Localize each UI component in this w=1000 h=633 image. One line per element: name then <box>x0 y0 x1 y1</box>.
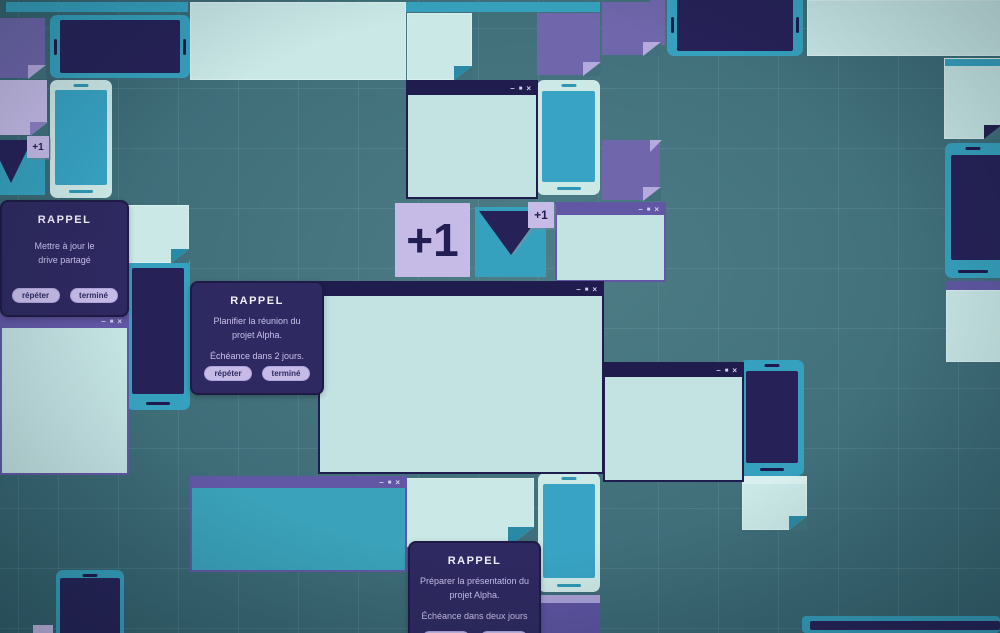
phone-portrait <box>126 256 190 410</box>
phone-landscape <box>50 15 190 78</box>
window-titlebar: – ■ × <box>192 478 405 488</box>
window-titlebar: – ■ × <box>320 283 602 296</box>
repeat-button[interactable]: répéter <box>204 366 252 381</box>
phone-landscape <box>802 616 1000 633</box>
phone-portrait <box>50 80 112 198</box>
phone-home-icon <box>557 584 581 587</box>
repeat-button[interactable]: répéter <box>12 288 60 303</box>
app-window: – ■ × <box>406 80 538 199</box>
phone-speaker-icon <box>765 364 780 367</box>
teal-bar <box>406 2 600 12</box>
mint-panel <box>190 2 406 80</box>
minimize-button[interactable]: – <box>638 206 642 214</box>
illustration-canvas: +1 – ■ × <box>0 0 1000 633</box>
phone-screen <box>746 371 798 463</box>
mint-panel <box>807 0 1000 56</box>
maximize-button[interactable]: ■ <box>519 86 523 92</box>
sticky-note-mint <box>742 476 807 530</box>
window-titlebar: – ■ × <box>605 364 742 377</box>
window-content <box>605 377 742 480</box>
reminder-text: projet Alpha. <box>192 329 322 343</box>
maximize-button[interactable]: ■ <box>388 480 392 486</box>
mint-panel <box>946 290 1000 362</box>
phone-home-icon <box>796 17 799 33</box>
sticky-note-mint <box>944 58 1000 139</box>
sticky-note-purple <box>0 18 45 78</box>
app-window: – ■ × <box>555 202 666 282</box>
reminder-card-left: RAPPEL Mettre à jour le drive partagé ré… <box>0 200 129 317</box>
phone-speaker-icon <box>966 147 981 150</box>
phone-speaker-icon <box>74 84 89 87</box>
reminder-card-bottom: RAPPEL Préparer la présentation du proje… <box>408 541 541 633</box>
phone-screen <box>951 155 1000 260</box>
close-button[interactable]: × <box>732 367 737 375</box>
reminder-deadline: Échéance dans 2 jours. <box>192 350 322 364</box>
plus-one-badge: +1 <box>27 136 49 158</box>
minimize-button[interactable]: – <box>379 479 383 487</box>
sticky-note-purple <box>537 13 600 75</box>
phone-speaker-icon <box>671 17 674 33</box>
phone-portrait <box>945 143 1000 278</box>
phone-home-icon <box>557 187 581 190</box>
sticky-note-purple <box>602 2 660 55</box>
purple-strip <box>538 595 600 603</box>
maximize-button[interactable]: ■ <box>585 287 589 293</box>
phone-home-icon <box>69 190 93 193</box>
phone-speaker-icon <box>562 477 577 480</box>
note-header <box>945 59 1000 66</box>
reminder-title: RAPPEL <box>2 214 127 226</box>
phone-portrait <box>740 360 804 476</box>
window-content <box>320 296 602 472</box>
phone-speaker-icon <box>561 84 576 87</box>
phone-portrait <box>56 570 124 633</box>
close-button[interactable]: × <box>592 286 597 294</box>
sticky-note-mint <box>126 205 189 263</box>
minimize-button[interactable]: – <box>576 286 580 294</box>
phone-portrait <box>537 80 600 195</box>
plus-one-tile: +1 <box>395 203 470 277</box>
app-window: – ■ × <box>603 362 744 482</box>
minimize-button[interactable]: – <box>716 367 720 375</box>
app-window: – ■ × <box>190 476 407 572</box>
note-fold <box>583 62 601 76</box>
phone-home-icon <box>146 402 170 405</box>
phone-screen <box>810 621 1000 630</box>
fold-decoration <box>650 140 662 152</box>
maximize-button[interactable]: ■ <box>725 368 729 374</box>
reminder-card-center: RAPPEL Planifier la réunion du projet Al… <box>190 281 324 395</box>
purple-strip <box>945 281 1000 290</box>
app-window-main: – ■ × <box>318 281 604 474</box>
window-content <box>2 328 127 473</box>
note-fold <box>643 187 661 201</box>
teal-bar <box>6 2 188 12</box>
phone-screen <box>677 0 793 51</box>
close-button[interactable]: × <box>117 318 122 326</box>
minimize-button[interactable]: – <box>101 318 105 326</box>
close-button[interactable]: × <box>526 85 531 93</box>
sticky-note-mint <box>407 13 472 80</box>
note-fold <box>30 122 48 136</box>
phone-home-icon <box>760 468 784 471</box>
minimize-button[interactable]: – <box>510 85 514 93</box>
window-content <box>557 215 664 280</box>
purple-panel <box>538 603 600 633</box>
reminder-text: Planifier la réunion du <box>192 315 322 329</box>
phone-speaker-icon <box>54 39 57 55</box>
window-content <box>192 488 405 570</box>
note-fold <box>171 249 189 263</box>
sticky-note-lavender <box>0 80 47 135</box>
reminder-title: RAPPEL <box>192 295 322 307</box>
done-button[interactable]: terminé <box>70 288 118 303</box>
window-content <box>408 95 536 197</box>
note-fold <box>789 516 807 530</box>
plus-one-badge: +1 <box>528 202 554 228</box>
note-fold <box>28 65 46 79</box>
close-button[interactable]: × <box>395 479 400 487</box>
window-titlebar: – ■ × <box>408 82 536 95</box>
phone-screen <box>542 91 595 182</box>
reminder-deadline: Échéance dans deux jours <box>410 610 539 624</box>
reminder-title: RAPPEL <box>410 555 539 567</box>
reminder-text: Mettre à jour le <box>2 240 127 254</box>
window-titlebar: – ■ × <box>557 204 664 215</box>
phone-screen <box>60 20 180 73</box>
phone-speaker-icon <box>83 574 98 577</box>
note-header <box>743 477 806 484</box>
phone-landscape <box>667 0 803 56</box>
close-button[interactable]: × <box>654 206 659 214</box>
phone-home-icon <box>183 39 186 55</box>
phone-screen <box>132 268 184 394</box>
note-fold <box>984 125 1000 139</box>
done-button[interactable]: terminé <box>262 366 310 381</box>
note-fold <box>643 42 661 56</box>
phone-screen <box>60 578 120 633</box>
phone-screen <box>55 90 107 185</box>
reminder-text: projet Alpha. <box>410 589 539 603</box>
note-fold <box>454 66 472 80</box>
phone-portrait <box>538 473 600 592</box>
phone-screen <box>543 484 595 578</box>
reminder-text: Préparer la présentation du <box>410 575 539 589</box>
app-window: – ■ × <box>0 313 129 475</box>
maximize-button[interactable]: ■ <box>647 207 651 213</box>
phone-home-icon <box>958 270 988 273</box>
maximize-button[interactable]: ■ <box>110 319 114 325</box>
sticky-note-mint <box>405 478 534 547</box>
reminder-text: drive partagé <box>2 254 127 268</box>
plus-one-badge <box>33 625 53 633</box>
